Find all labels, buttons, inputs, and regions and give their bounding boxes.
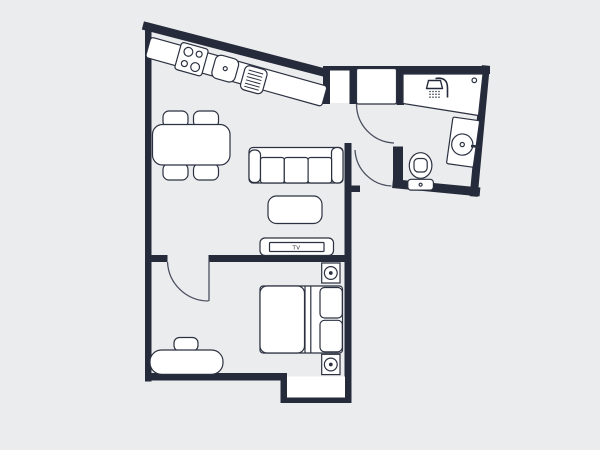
wall-left	[145, 24, 152, 382]
wall-niche-bar-b	[350, 68, 357, 104]
bed-mattress	[260, 286, 305, 353]
bench	[150, 350, 223, 374]
stool	[174, 338, 198, 352]
coffee-table	[268, 196, 322, 224]
ceiling-speaker-bottom	[322, 354, 340, 374]
sofa	[249, 148, 343, 184]
wall-hall-tick	[352, 186, 361, 193]
dining-table	[153, 125, 231, 166]
double-bed	[260, 286, 343, 353]
sofa-arm-right	[332, 148, 344, 184]
washbasin-faucet	[471, 146, 481, 147]
dining-chair	[163, 164, 188, 181]
speaker-dot	[329, 271, 333, 275]
wall-right-long	[345, 143, 352, 403]
pillow	[320, 288, 342, 319]
ceiling-speaker-top	[322, 263, 340, 283]
speaker-dot	[329, 363, 333, 367]
storage-niche	[330, 71, 350, 104]
tv-label: TV	[291, 246, 300, 252]
sofa-cushion	[308, 158, 332, 184]
toilet-tank	[408, 179, 434, 190]
washbasin	[446, 117, 479, 167]
floor-plan-svg: TV	[0, 0, 600, 450]
tv-stand: TV	[260, 238, 334, 256]
entrance-door-panel	[357, 69, 397, 105]
toilet	[408, 153, 434, 190]
pillow	[320, 320, 342, 352]
shower-head	[427, 81, 443, 89]
wall-divider-left	[150, 255, 168, 262]
sofa-cushion	[284, 158, 308, 184]
floor-plan-canvas: TV	[0, 0, 600, 450]
toilet-bowl-inner	[414, 159, 427, 173]
wall-bathroom-stub	[393, 147, 403, 189]
sofa-cushion	[261, 158, 285, 184]
dining-chair	[194, 164, 219, 181]
entry-niche	[287, 377, 345, 398]
sofa-arm-left	[249, 150, 261, 183]
